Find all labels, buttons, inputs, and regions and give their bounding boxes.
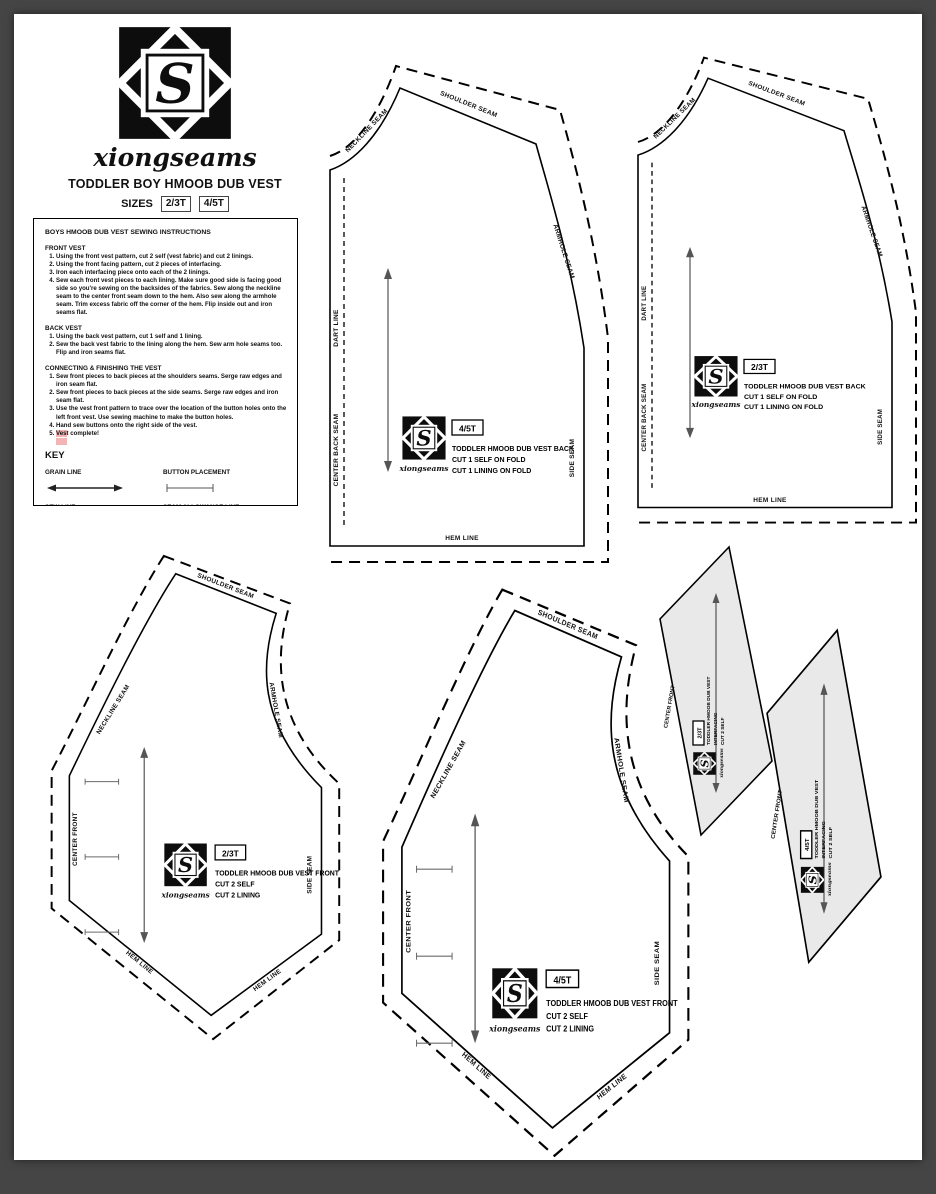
seam-allowance-line: [330, 66, 608, 562]
center-front-label: CENTER FRONT: [405, 890, 413, 953]
cut-instruction-2: CUT 1 LINING ON FOLD: [452, 468, 531, 475]
sewing-instructions-box: BOYS HMOOB DUB VEST SEWING INSTRUCTIONS …: [33, 218, 298, 506]
grain-line-arrow: [140, 747, 148, 943]
dart-line-label: DART LINE: [333, 309, 340, 347]
hem-line-label-right: HEM LINE: [252, 968, 283, 993]
instruction-step: Sew the back vest fabric to the lining a…: [56, 341, 289, 357]
center-back-seam-label: CENTER BACK SEAM: [333, 414, 340, 487]
xiongseams-logo: [492, 968, 537, 1018]
instruction-step: Use the vest front pattern to trace over…: [56, 405, 289, 421]
instruction-step-final: Vest complete!: [56, 430, 289, 438]
sew-line: [69, 574, 321, 1016]
size-badge-small: 2/3T: [161, 196, 191, 212]
key-button-placement: BUTTON PLACEMENT: [163, 467, 289, 498]
xiongseams-logo: [801, 867, 824, 893]
size-label: 4/5T: [459, 424, 477, 434]
piece-info-block: xiongseams 2/3T TODDLER HMOOB DUB VEST B…: [691, 356, 866, 411]
instruction-step: Sew front pieces to back pieces at the s…: [56, 373, 289, 389]
grain-line-arrow: [384, 268, 392, 472]
button-placement-mark: [85, 854, 118, 860]
center-front-label: CENTER FRONT: [771, 789, 784, 839]
button-placement-mark: [417, 1040, 453, 1047]
finishing-heading: CONNECTING & FINISHING THE VEST: [45, 365, 289, 372]
piece-name-line2: INTERFACING: [821, 821, 827, 858]
size-badge-large: 4/5T: [199, 196, 229, 212]
seam-allowance-line: [383, 590, 688, 1156]
piece-name: TODDLER HMOOB DUB VEST: [814, 779, 820, 859]
cut-instruction-1: CUT 2 SELF: [546, 1011, 588, 1020]
hem-line-label-right: HEM LINE: [596, 1072, 629, 1102]
cut-instruction-2: CUT 2 LINING: [546, 1024, 594, 1033]
brand-name: xiongseams: [719, 748, 725, 779]
hem-line-label: HEM LINE: [445, 535, 479, 542]
armhole-seam-label: ARMHOLE SEAM: [267, 682, 284, 739]
instruction-step: Iron each interfacing piece onto each of…: [56, 269, 289, 277]
size-label: 4/5T: [805, 838, 811, 851]
shoulder-seam-label: SHOULDER SEAM: [439, 90, 498, 119]
shoulder-seam-label: SHOULDER SEAM: [196, 572, 254, 600]
neckline-seam-label: NECKLINE SEAM: [652, 97, 697, 141]
seam-allowance-line: [52, 556, 340, 1039]
brand-name: xiongseams: [827, 862, 833, 897]
size-label: 2/3T: [697, 727, 703, 739]
sizes-label: SIZES: [121, 198, 153, 210]
grain-line-arrow: [471, 814, 479, 1044]
neckline-seam-label: NECKLINE SEAM: [429, 739, 467, 800]
cut-instruction-1: CUT 2 SELF: [215, 882, 254, 889]
xiongseams-logo: [694, 356, 737, 396]
finishing-steps: Sew front pieces to back pieces at the s…: [45, 373, 289, 437]
xiongseams-logo: [116, 26, 234, 140]
piece-name-line2: INTERFACING: [713, 712, 719, 745]
back-vest-heading: BACK VEST: [45, 325, 289, 332]
brand-name: xiongseams: [691, 400, 741, 409]
xiongseams-logo: [693, 752, 716, 775]
center-front-label: CENTER FRONT: [663, 684, 677, 728]
piece-info-block: xiongseams 4/5T TODDLER HMOOB DUB VEST F…: [488, 968, 678, 1033]
highlighted-text: Ves: [56, 430, 67, 437]
pattern-piece-facing-4-5t: CENTER FRONT 4/5T TODDLER HMOOB DUB VEST…: [763, 628, 885, 968]
piece-name: TODDLER HMOOB DUB VEST FRONT: [215, 871, 340, 878]
pattern-piece-back-4-5t: NECKLINE SEAM SHOULDER SEAM ARMHOLE SEAM…: [322, 60, 614, 570]
xiongseams-logo: [164, 843, 206, 886]
piece-name: TODDLER HMOOB DUB VEST BACK: [452, 446, 574, 453]
pattern-piece-facing-2-3t: CENTER FRONT 2/3T TODDLER HMOOB DUB VEST…: [655, 545, 777, 840]
pattern-piece-front-4-5t: SHOULDER SEAM NECKLINE SEAM ARMHOLE SEAM…: [358, 585, 703, 1165]
brand-name: xiongseams: [488, 1023, 540, 1034]
key-legend: GRAIN LINE BUTTON PLACEMENT SEW LINE: [45, 467, 289, 506]
grain-line-label: GRAIN LINE: [45, 469, 163, 476]
hem-line-label: HEM LINE: [753, 497, 786, 504]
instruction-step: Sew each front vest pieces to each linin…: [56, 277, 289, 317]
shoulder-seam-label: SHOULDER SEAM: [747, 80, 806, 108]
key-sew-line: SEW LINE: [45, 502, 163, 506]
key-heading: KEY: [45, 450, 289, 461]
button-placement-marks: [417, 866, 453, 1047]
pattern-page: xiongseams TODDLER BOY HMOOB DUB VEST SI…: [14, 14, 922, 1160]
pattern-piece-back-2-3t: NECKLINE SEAM SHOULDER SEAM ARMHOLE SEAM…: [630, 52, 922, 530]
button-placement-marks: [85, 779, 118, 935]
instructions-title: BOYS HMOOB DUB VEST SEWING INSTRUCTIONS: [45, 229, 289, 236]
size-label: 2/3T: [222, 848, 240, 858]
armhole-seam-label: ARMHOLE SEAM: [859, 205, 883, 258]
header: xiongseams TODDLER BOY HMOOB DUB VEST SI…: [32, 26, 318, 212]
piece-name: TODDLER HMOOB DUB VEST FRONT: [546, 999, 678, 1008]
button-placement-mark: [417, 953, 453, 960]
button-placement-mark: [85, 779, 118, 785]
side-seam-label: SIDE SEAM: [569, 439, 576, 477]
armhole-seam-label: ARMHOLE SEAM: [551, 223, 575, 279]
neckline-seam-label: NECKLINE SEAM: [344, 108, 389, 154]
xiongseams-logo: [402, 416, 445, 459]
brand-name: xiongseams: [32, 145, 318, 170]
side-seam-label: SIDE SEAM: [877, 409, 884, 445]
page-title: TODDLER BOY HMOOB DUB VEST: [32, 177, 318, 191]
grain-line-arrow: [686, 247, 694, 438]
cut-instruction-2: CUT 2 LINING: [215, 892, 260, 899]
piece-info-block: xiongseams 4/5T TODDLER HMOOB DUB VEST B…: [398, 416, 574, 475]
highlight-artifact: [56, 438, 67, 445]
piece-name: TODDLER HMOOB DUB VEST: [706, 677, 712, 745]
seam-allowance-label: SEAM ALLOWANCE LINE: [163, 504, 289, 506]
neckline-seam-label: NECKLINE SEAM: [95, 684, 131, 736]
sizes-row: SIZES 2/3T 4/5T: [32, 196, 318, 212]
sew-line: [330, 88, 584, 546]
sew-line: [638, 78, 892, 507]
brand-name: xiongseams: [160, 890, 210, 899]
button-placement-mark: [417, 866, 453, 873]
button-placement-mark: [85, 929, 118, 935]
instruction-step: Using the front vest pattern, cut 2 self…: [56, 253, 289, 261]
instruction-step: Using the back vest pattern, cut 1 self …: [56, 333, 289, 341]
cut-instruction-2: CUT 1 LINING ON FOLD: [744, 404, 823, 411]
dart-line-label: DART LINE: [641, 286, 648, 321]
cut-instruction-1: CUT 2 SELF: [720, 717, 726, 745]
sew-line-label: SEW LINE: [45, 504, 163, 506]
cut-instruction-1: CUT 1 SELF ON FOLD: [744, 394, 817, 401]
side-seam-label: SIDE SEAM: [653, 941, 661, 985]
front-vest-heading: FRONT VEST: [45, 245, 289, 252]
grain-line-symbol: [45, 483, 125, 493]
final-step-rest: t complete!: [67, 430, 100, 437]
center-front-label: CENTER FRONT: [72, 812, 79, 866]
size-label: 4/5T: [554, 975, 572, 986]
key-seam-allowance: SEAM ALLOWANCE LINE: [163, 502, 289, 506]
instruction-step: Hand sew buttons onto the right side of …: [56, 422, 289, 430]
button-placement-label: BUTTON PLACEMENT: [163, 469, 289, 476]
instruction-step: Sew front pieces to back pieces at the s…: [56, 389, 289, 405]
seam-allowance-line: [638, 58, 916, 523]
piece-name: TODDLER HMOOB DUB VEST BACK: [744, 384, 866, 391]
back-vest-steps: Using the back vest pattern, cut 1 self …: [45, 333, 289, 357]
button-placement-symbol: [163, 483, 233, 493]
front-vest-steps: Using the front vest pattern, cut 2 self…: [45, 253, 289, 317]
cut-instruction-1: CUT 2 SELF: [828, 827, 834, 859]
key-grain-line: GRAIN LINE: [45, 467, 163, 498]
brand-name: xiongseams: [398, 464, 449, 473]
center-back-seam-label: CENTER BACK SEAM: [641, 384, 648, 452]
cut-instruction-1: CUT 1 SELF ON FOLD: [452, 457, 526, 464]
armhole-seam-label: ARMHOLE SEAM: [612, 737, 630, 803]
pattern-piece-front-2-3t: SHOULDER SEAM NECKLINE SEAM ARMHOLE SEAM…: [28, 552, 353, 1047]
hem-line-label-left: HEM LINE: [460, 1050, 492, 1081]
size-label: 2/3T: [751, 363, 768, 372]
instruction-step: Using the front facing pattern, cut 2 pi…: [56, 261, 289, 269]
